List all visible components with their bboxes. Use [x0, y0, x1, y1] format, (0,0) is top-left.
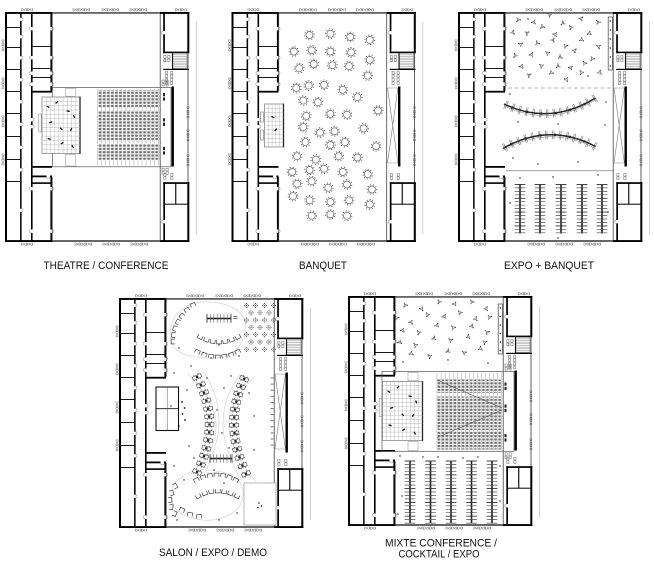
svg-text:THEATRE / CONFERENCE: THEATRE / CONFERENCE: [44, 260, 169, 272]
svg-text:EXPO + BANQUET: EXPO + BANQUET: [504, 260, 594, 272]
svg-text:SALON / EXPO / DEMO: SALON / EXPO / DEMO: [159, 547, 267, 559]
svg-text:BANQUET: BANQUET: [299, 260, 347, 272]
svg-text:COCKTAIL / EXPO: COCKTAIL / EXPO: [399, 549, 480, 561]
